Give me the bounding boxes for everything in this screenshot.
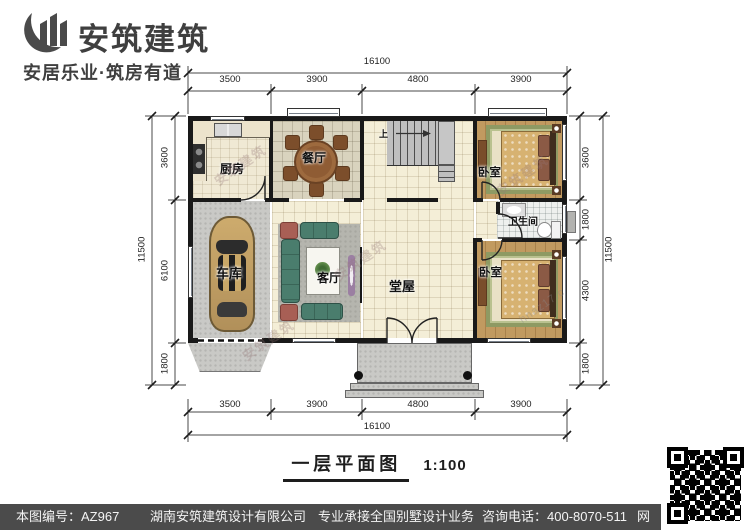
qr-finder xyxy=(723,447,744,468)
wall-under-stairs xyxy=(387,198,438,202)
dim-right-seg: 3600 xyxy=(581,135,592,181)
drawing-scale: 1:100 xyxy=(423,457,466,474)
bedroom-bottom-headboard xyxy=(550,260,556,317)
dim-right-seg: 1800 xyxy=(581,197,592,243)
bathroom-right-window xyxy=(562,204,567,234)
brand-logo xyxy=(14,4,78,58)
dim-right-seg: 4300 xyxy=(581,268,592,314)
porch-column-left xyxy=(354,371,363,380)
floor-plan: 厨房 餐厅 车库 客厅 堂屋 卧室 卧室 卫生间 上 xyxy=(188,116,567,397)
qr-finder xyxy=(667,503,688,524)
living-bottom-window xyxy=(292,338,336,343)
tv xyxy=(348,255,355,296)
brand-name: 安筑建筑 xyxy=(78,14,210,59)
wall-hall-bedroom-top xyxy=(473,121,477,200)
dining-chair xyxy=(309,125,324,140)
living-label: 客厅 xyxy=(317,269,341,286)
staircase-landing xyxy=(438,121,455,165)
dim-left-seg: 3600 xyxy=(160,135,171,181)
staircase-run xyxy=(387,121,438,166)
dining-chair xyxy=(309,182,324,197)
car-rear-window xyxy=(217,302,247,317)
garage-left-window xyxy=(188,246,193,298)
dim-top-total: 16100 xyxy=(354,56,400,67)
bedroom-top-headboard xyxy=(550,131,556,185)
nightstand xyxy=(552,319,561,328)
toilet-tank xyxy=(551,221,561,239)
garage-label: 车库 xyxy=(216,263,242,282)
hall-label: 堂屋 xyxy=(389,276,415,295)
company-service: 专业承接全国别墅设计业务 xyxy=(318,504,474,530)
dining-bay-window xyxy=(287,108,340,117)
bedroom-top-pillow xyxy=(538,159,550,181)
footer-bar: 本图编号：AZ967 湖南安筑建筑设计有限公司 专业承接全国别墅设计业务 咨询电… xyxy=(0,504,750,530)
porch-column-right xyxy=(463,371,472,380)
entry-porch xyxy=(357,343,472,383)
kitchen-sink xyxy=(214,123,242,137)
bedroom-top-bay-window xyxy=(488,108,547,117)
garage-apron xyxy=(188,343,272,372)
dim-bottom-seg: 3500 xyxy=(207,399,253,410)
sofa-main xyxy=(281,239,300,303)
dim-top-seg: 3900 xyxy=(498,74,544,85)
bedroom-top-pillow xyxy=(538,135,550,157)
bedroom-bottom-pillow xyxy=(538,289,550,312)
nightstand xyxy=(552,250,561,259)
garage-door-opening xyxy=(198,338,262,343)
wall-kitchen-bottom-a xyxy=(193,198,241,202)
bathroom-label: 卫生间 xyxy=(508,213,538,228)
wall-bathroom-bottom-a xyxy=(473,238,482,242)
dim-top-seg: 3500 xyxy=(207,74,253,85)
building-logo-icon xyxy=(14,4,78,58)
wall-dining-bottom-a xyxy=(271,198,289,202)
company-name: 湖南安筑建筑设计有限公司 xyxy=(150,504,306,530)
dim-top-seg: 4800 xyxy=(395,74,441,85)
dim-left-total: 11500 xyxy=(137,227,148,273)
company-phone: 咨询电话：400-8070-511 xyxy=(482,504,627,530)
kitchen-stove xyxy=(193,144,205,174)
corridor-floor xyxy=(476,201,497,239)
bedroom-bottom-window xyxy=(487,338,531,343)
drawing-title-row: 一层平面图1:100 xyxy=(0,450,750,482)
armchair xyxy=(280,222,298,239)
dim-right-total: 11500 xyxy=(604,227,615,273)
dining-chair xyxy=(333,135,348,150)
staircase-turn xyxy=(438,165,455,182)
bedroom-top-right-window xyxy=(562,124,567,181)
wall-bathroom-left xyxy=(496,202,500,214)
dim-bottom-seg: 3900 xyxy=(294,399,340,410)
brand-tagline: 安居乐业·筑房有道 xyxy=(23,59,182,85)
ac-platform xyxy=(567,211,576,233)
stairs-up-label: 上 xyxy=(379,127,388,140)
wall-bedroom-top-bottom-a xyxy=(473,198,483,202)
armchair xyxy=(280,304,298,321)
qr-finder xyxy=(667,447,688,468)
wall-dining-bottom-b xyxy=(344,198,362,202)
qr-code xyxy=(661,441,750,530)
drawing-title: 一层平面图 xyxy=(283,450,409,482)
dim-bottom-total: 16100 xyxy=(354,421,400,432)
screen: 安筑建筑 安居乐业·筑房有道 xyxy=(0,0,750,530)
nightstand xyxy=(552,124,561,133)
nightstand xyxy=(552,186,561,195)
dining-chair xyxy=(335,166,350,181)
net-label: 网 xyxy=(637,504,650,530)
porch-step-1 xyxy=(350,383,479,390)
bedroom-bottom-pillow xyxy=(538,264,550,287)
car-windshield xyxy=(216,240,248,254)
wall-bedroom-top-bottom-b xyxy=(500,198,562,202)
dim-top-seg: 3900 xyxy=(294,74,340,85)
dim-left-seg: 1800 xyxy=(160,341,171,387)
dining-label: 餐厅 xyxy=(302,149,326,166)
kitchen-label: 厨房 xyxy=(220,160,244,177)
wall-hall-bedroom-bottom xyxy=(473,238,477,339)
sofa-bottom xyxy=(301,303,343,320)
bedroom-bottom-right-window xyxy=(562,256,567,320)
bedroom-bottom-label: 卧室 xyxy=(479,264,502,280)
sofa-top xyxy=(300,222,339,239)
dim-bottom-seg: 3900 xyxy=(498,399,544,410)
dim-bottom-seg: 4800 xyxy=(395,399,441,410)
dim-left-seg: 6100 xyxy=(160,248,171,294)
wall-dining-hall xyxy=(360,121,364,200)
bedroom-top-label: 卧室 xyxy=(478,164,501,180)
dim-right-seg: 1800 xyxy=(581,341,592,387)
entry-door-opening xyxy=(387,338,437,343)
drawing-number: 本图编号：AZ967 xyxy=(16,504,119,530)
toilet-bowl xyxy=(537,222,552,238)
porch-step-2 xyxy=(345,390,484,398)
